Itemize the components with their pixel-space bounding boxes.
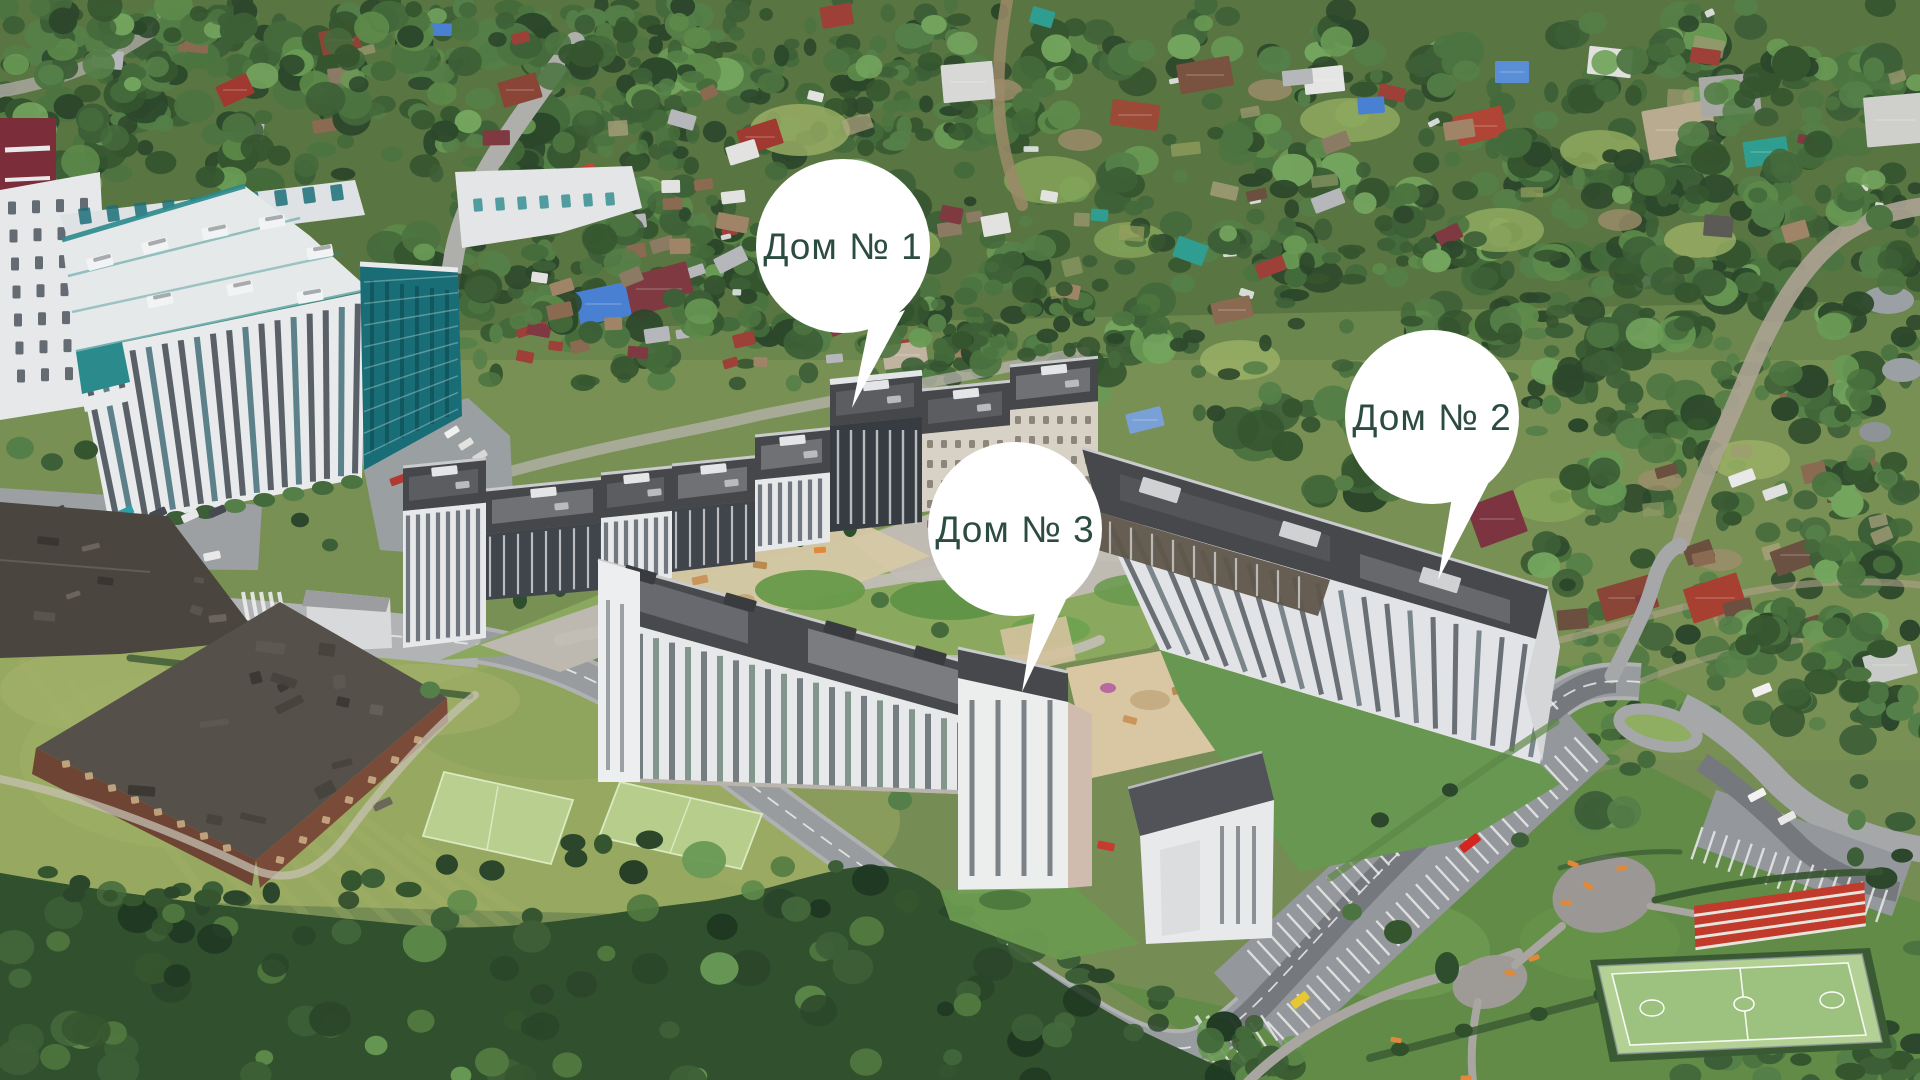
svg-text:Дом № 1: Дом № 1 [763,226,922,267]
svg-text:Дом № 2: Дом № 2 [1352,397,1511,438]
svg-text:Дом № 3: Дом № 3 [935,509,1094,550]
